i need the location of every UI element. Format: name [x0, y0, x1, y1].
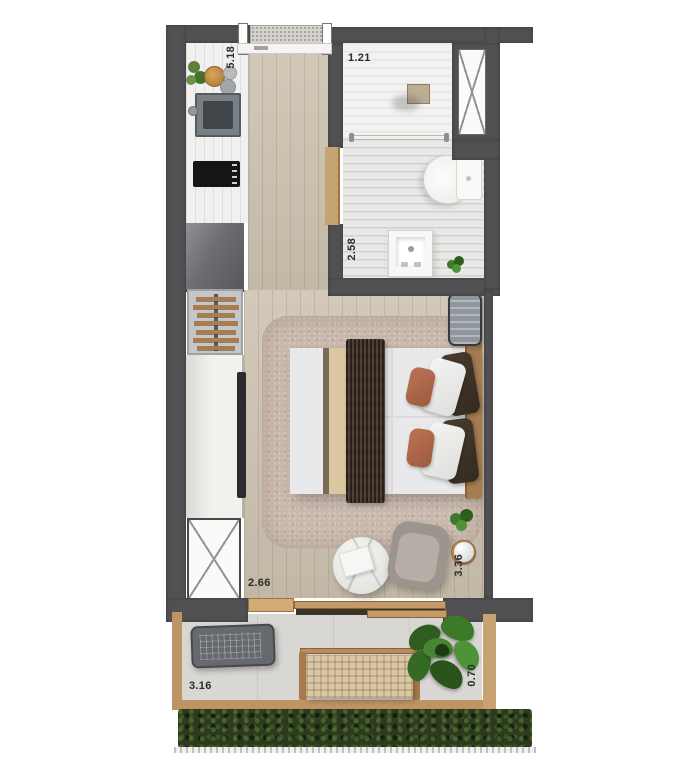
dimension-label-bathroom-side: 2.58	[347, 238, 358, 261]
utility-closet-x	[187, 518, 241, 600]
dimension-label-balcony-bottom: 3.16	[189, 681, 212, 692]
duvet-seam	[385, 416, 465, 418]
shower-shadow	[392, 95, 420, 111]
ac-condenser	[190, 624, 275, 669]
glass-bracket-icon	[444, 133, 449, 142]
shaft-stub	[452, 140, 500, 160]
balcony-railing	[174, 747, 536, 753]
throw-blanket	[346, 339, 385, 503]
balcony-wood-edge-left	[172, 612, 182, 710]
corridor-wood-floor	[248, 43, 328, 290]
wall-right-lower	[484, 290, 493, 598]
bathroom-plant-icon	[446, 256, 466, 273]
dimension-label-bathroom-top: 1.21	[348, 53, 371, 64]
armchair	[385, 519, 451, 592]
toilet-flush-icon	[466, 176, 471, 181]
tv-panel	[237, 372, 246, 498]
hanger-rack	[187, 289, 243, 355]
dimension-label-bedroom-bottom: 2.66	[248, 578, 271, 589]
glass-bracket-icon	[349, 133, 354, 142]
utility-shaft-x	[458, 49, 486, 135]
bathroom-wall-bottom	[328, 278, 500, 296]
dimension-label-balcony-side: 0.70	[467, 664, 478, 687]
fridge	[186, 223, 244, 292]
dimension-label-living-side: 3.36	[454, 554, 465, 577]
wall-left	[166, 25, 186, 622]
faucet-handle-icon	[414, 262, 421, 267]
nightstand	[448, 293, 482, 346]
cooktop	[193, 161, 240, 187]
bathroom-wall-upper	[328, 43, 343, 148]
hedge-planter	[178, 709, 532, 748]
duvet-seam	[391, 348, 393, 494]
kitchen-sink	[195, 93, 241, 137]
sliding-door-panel	[294, 601, 446, 609]
dimension-label-entry-side: 5.18	[226, 46, 237, 69]
shower-glass-partition	[352, 135, 448, 140]
window-sill	[248, 598, 294, 612]
wall-top-right	[330, 27, 533, 43]
bench-rail	[300, 648, 419, 654]
washbasin-faucet-icon	[408, 246, 414, 252]
door-handle-icon	[254, 46, 268, 50]
wardrobe-cabinet	[186, 355, 244, 518]
faucet-handle-icon	[401, 262, 408, 267]
woven-bench	[306, 655, 413, 698]
bathroom-pocket-door	[325, 147, 340, 225]
living-plant-icon	[448, 507, 476, 533]
entry-door-threshold	[237, 43, 332, 54]
floor-plan: 5.18 1.21 2.58 2.66 3.36 3.16 0.70	[0, 0, 683, 768]
washbasin	[388, 230, 433, 277]
kitchen-faucet-icon	[188, 106, 198, 116]
